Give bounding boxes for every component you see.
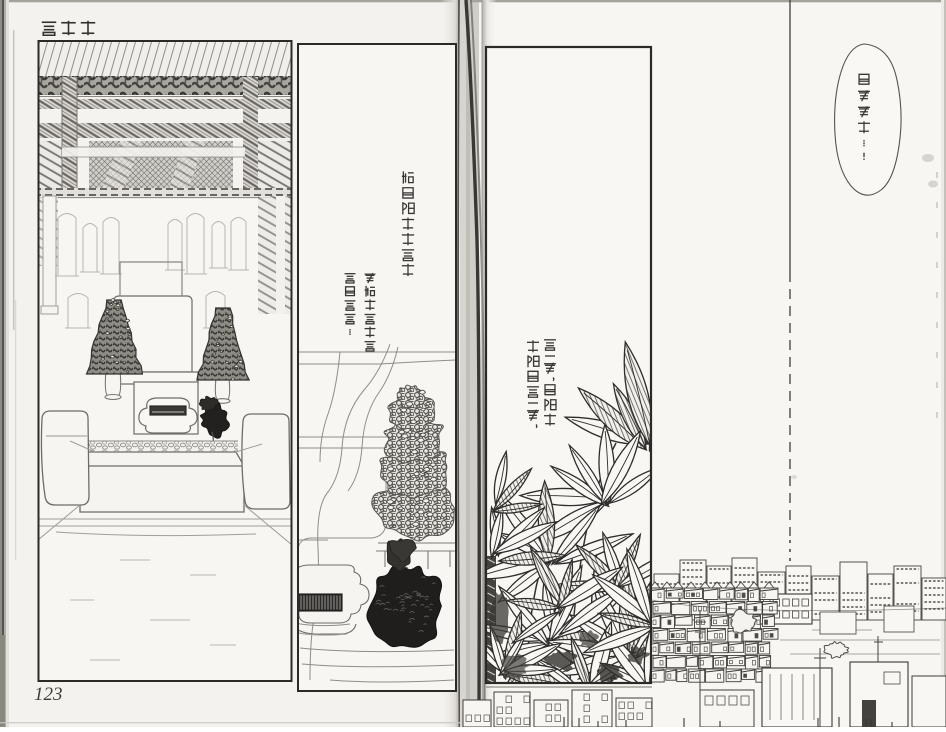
svg-text:123: 123 (34, 684, 63, 705)
